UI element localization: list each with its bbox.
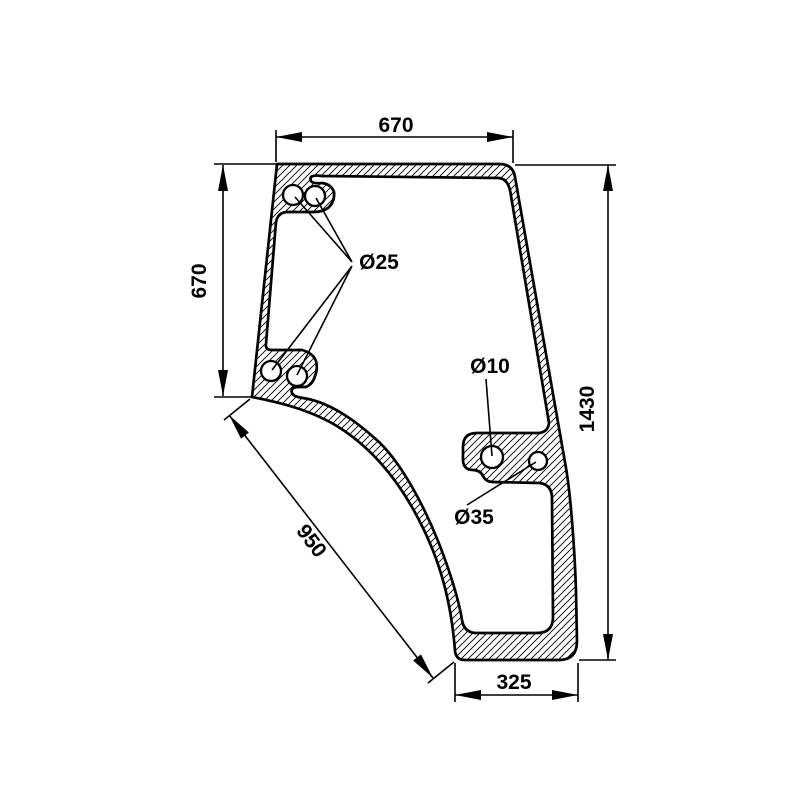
arrowhead-left (276, 132, 302, 142)
dimension-top-width: 670 (276, 114, 513, 163)
dimension-diagonal-edge: 950 (224, 399, 454, 683)
door-glass-drawing: 670 670 1430 325 950 Ø25 Ø10 Ø35 (0, 0, 800, 800)
extension-lines (224, 399, 454, 683)
dimension-value: 950 (291, 520, 330, 562)
dimension-value: 670 (378, 114, 413, 137)
hole-mid-right (287, 366, 307, 386)
arrowhead-down (603, 634, 613, 660)
leader-lines-d25 (272, 197, 352, 375)
arrowhead-left (455, 690, 481, 700)
arrowhead-upleft (229, 415, 249, 439)
label-d25: Ø25 (359, 251, 399, 274)
arrowhead-right (552, 690, 578, 700)
arrowhead-up (218, 165, 228, 191)
glass-panel-outline (252, 164, 577, 660)
dimension-value: 325 (496, 671, 531, 694)
hole-mid-left (261, 361, 281, 381)
dimension-value: 1430 (576, 386, 599, 433)
arrowhead-downright (413, 654, 433, 678)
hole-bracket-large (529, 452, 547, 470)
drawing-canvas: 670 670 1430 325 950 Ø25 Ø10 Ø35 (0, 0, 800, 800)
dimension-bottom-width: 325 (455, 663, 578, 702)
dimension-value: 670 (188, 263, 211, 298)
label-d35: Ø35 (454, 506, 494, 529)
arrowhead-up (603, 165, 613, 191)
hole-top-right (305, 186, 325, 206)
label-d10: Ø10 (470, 355, 510, 378)
arrowhead-right (487, 132, 513, 142)
arrowhead-down (218, 370, 228, 396)
